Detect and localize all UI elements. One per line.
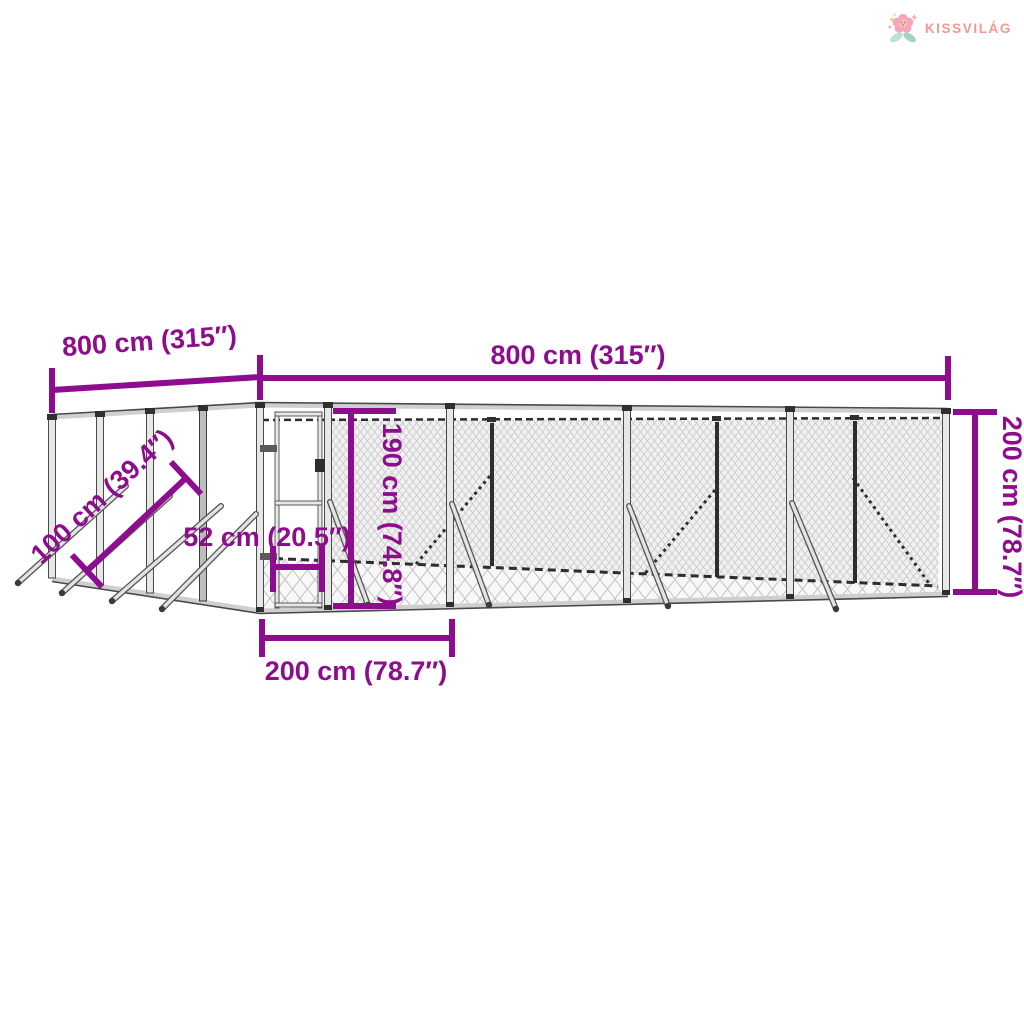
dim-front-800: 800 cm (315″) <box>260 340 948 400</box>
dimension-label: 800 cm (315″) <box>61 320 238 362</box>
door-latch <box>315 459 325 472</box>
brand-name: KISSVILÁG <box>925 21 1012 36</box>
brand-logo: KISSVILÁG <box>887 10 1012 46</box>
door-mid-rail <box>275 501 322 505</box>
door-bottom-rail <box>275 603 322 607</box>
product-diagram: 800 cm (315″) 800 cm (315″) 200 cm (78.7… <box>0 0 1024 1024</box>
dim-door-panel-200: 200 cm (78.7″) <box>262 619 452 686</box>
kennel-diagram-svg: 800 cm (315″) 800 cm (315″) 200 cm (78.7… <box>0 0 1024 1024</box>
dimension-label: 52 cm (20.5″) <box>183 522 351 552</box>
door-hinge-top <box>260 445 277 452</box>
door-top-rail <box>275 412 322 416</box>
back-wall-seen-through <box>328 419 942 586</box>
dim-height-200: 200 cm (78.7″) <box>953 412 1024 598</box>
front-wall <box>260 406 948 610</box>
dimension-label: 200 cm (78.7″) <box>997 416 1024 599</box>
dim-side-800: 800 cm (315″) <box>52 320 260 413</box>
dimension-label: 800 cm (315″) <box>490 340 665 370</box>
flower-icon <box>887 10 919 46</box>
dimension-label: 190 cm (74.8″) <box>377 423 407 606</box>
dimension-label: 200 cm (78.7″) <box>265 656 448 686</box>
